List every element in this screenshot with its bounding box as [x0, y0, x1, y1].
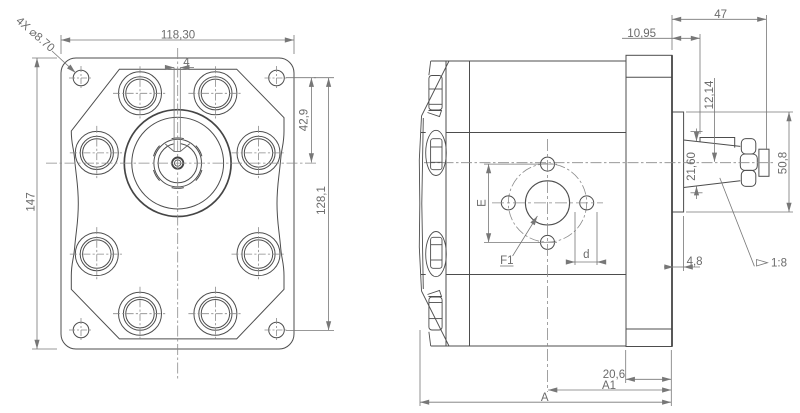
svg-text:A1: A1	[602, 380, 616, 392]
svg-text:42,9: 42,9	[299, 109, 311, 131]
svg-text:F1: F1	[500, 255, 513, 267]
svg-text:128,1: 128,1	[316, 186, 328, 215]
svg-text:1:8: 1:8	[771, 258, 787, 270]
svg-text:47: 47	[714, 9, 727, 21]
svg-text:A: A	[541, 392, 549, 404]
svg-text:E: E	[477, 199, 489, 207]
svg-text:21,60: 21,60	[686, 152, 698, 181]
svg-text:12,14: 12,14	[704, 80, 716, 109]
svg-text:10,95: 10,95	[627, 28, 656, 40]
svg-text:4: 4	[183, 57, 190, 69]
svg-text:4,8: 4,8	[687, 256, 703, 268]
svg-text:147: 147	[25, 192, 37, 211]
svg-text:118,30: 118,30	[161, 30, 195, 42]
svg-text:50,8: 50,8	[778, 152, 790, 174]
svg-text:d: d	[583, 249, 589, 261]
